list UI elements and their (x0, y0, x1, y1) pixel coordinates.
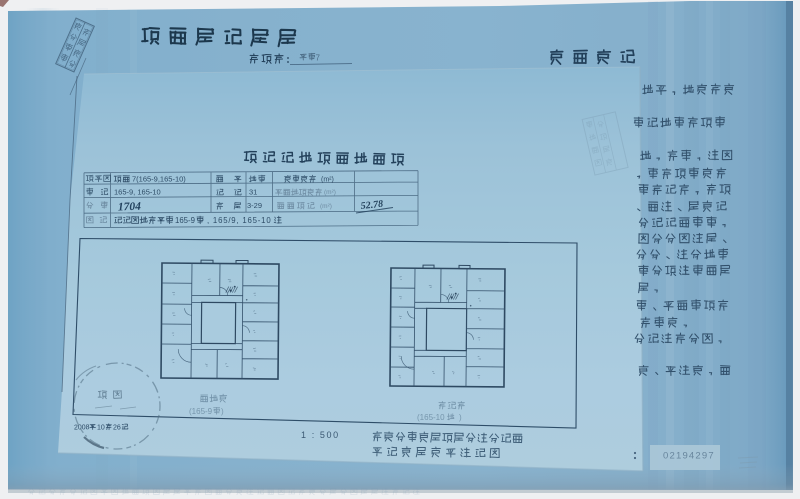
svg-text:(m²): (m²) (324, 189, 336, 196)
svg-text:52.78: 52.78 (360, 199, 384, 212)
svg-text:10: 10 (97, 425, 105, 432)
svg-text:1704: 1704 (118, 201, 142, 214)
svg-text:(165-10: (165-10 (417, 413, 445, 422)
svg-text:1 : 500: 1 : 500 (301, 430, 340, 440)
svg-text:): ) (221, 407, 224, 416)
svg-text:(m²): (m²) (321, 177, 334, 184)
svg-text:7: 7 (316, 54, 321, 63)
svg-text:165-9, 165-10: 165-9, 165-10 (114, 188, 161, 197)
svg-text:7(165-9,165-10): 7(165-9,165-10) (132, 175, 186, 184)
svg-text:3-29: 3-29 (247, 201, 262, 210)
svg-text:165-9: 165-9 (175, 216, 195, 225)
svg-text:31: 31 (249, 188, 257, 197)
svg-text:): ) (459, 413, 462, 422)
svg-text:02194297: 02194297 (663, 451, 715, 462)
svg-text:, 165/9, 165-10: , 165/9, 165-10 (207, 216, 271, 225)
svg-text:26: 26 (113, 425, 121, 432)
svg-text:(165-9: (165-9 (189, 407, 213, 416)
svg-text:(m²): (m²) (320, 203, 332, 210)
